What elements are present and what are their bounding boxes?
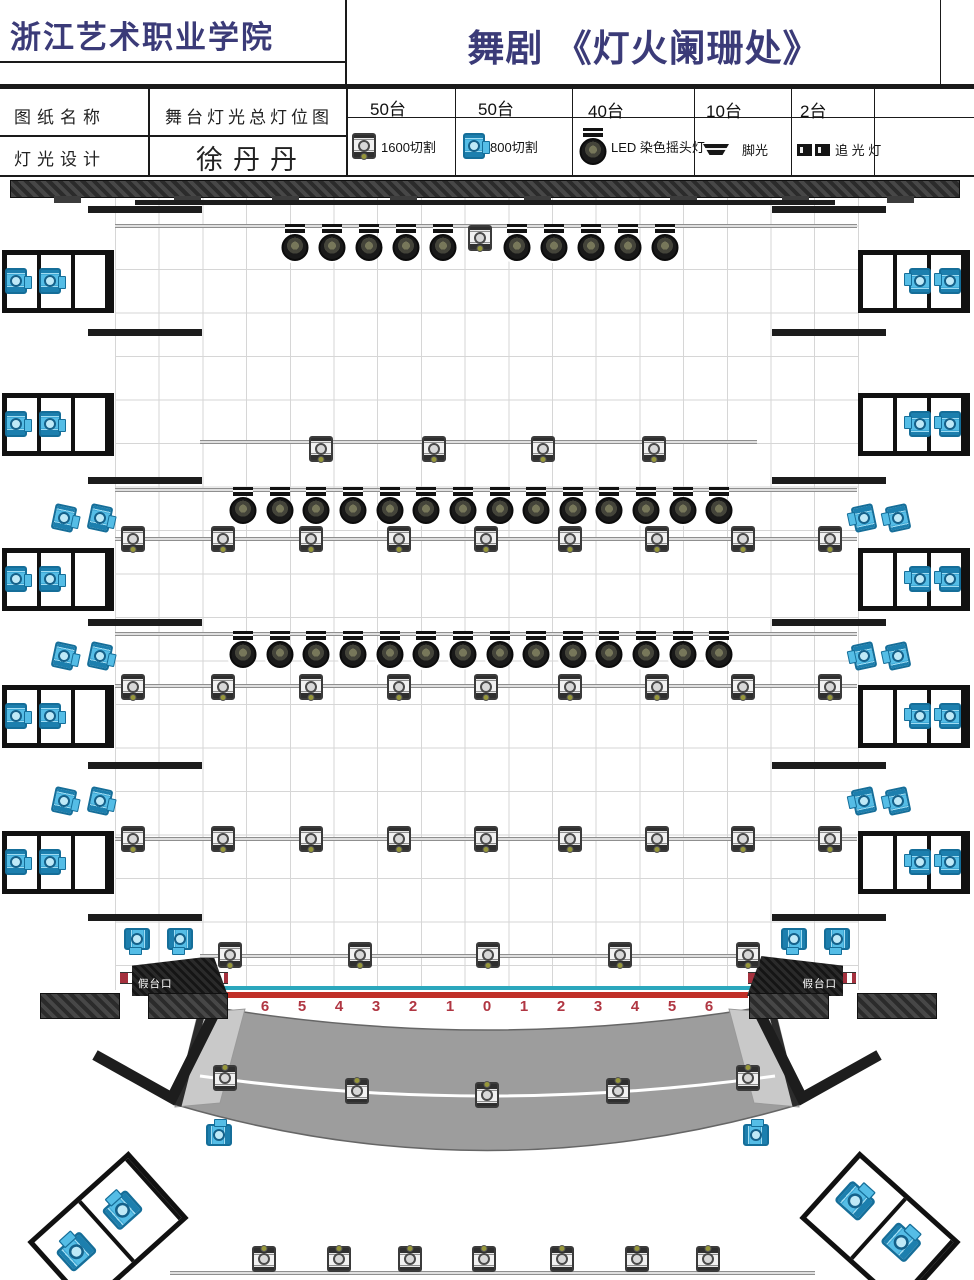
moving-head-light xyxy=(670,631,696,665)
profile-800-light xyxy=(851,641,878,671)
scale-number: 0 xyxy=(478,998,496,1015)
right-light-tower xyxy=(858,831,970,894)
profile-800-light xyxy=(939,566,961,592)
moving-head-light xyxy=(633,487,659,521)
wall-tab xyxy=(54,196,81,203)
legend-divider xyxy=(874,89,875,176)
legend-label-led: LED 染色摇头灯 xyxy=(611,137,705,156)
moving-head-light xyxy=(560,487,586,521)
profile-1600-light xyxy=(474,674,498,700)
scale-number: 4 xyxy=(626,998,644,1015)
moving-head-light xyxy=(633,631,659,665)
profile-800-light xyxy=(939,411,961,437)
false-proscenium-left-label: 假台口 xyxy=(138,976,173,991)
moving-head-light xyxy=(413,487,439,521)
profile-1600-light xyxy=(398,1246,422,1272)
left-wing-bar xyxy=(88,206,202,213)
right-wing-bar xyxy=(772,914,886,921)
profile-800-light xyxy=(87,641,114,671)
left-light-tower xyxy=(2,250,114,313)
profile-800-light xyxy=(39,703,61,729)
profile-800-light xyxy=(909,566,931,592)
profile-1600-light xyxy=(211,526,235,552)
left-light-tower xyxy=(2,548,114,611)
left-light-tower xyxy=(2,393,114,456)
moving-head-light xyxy=(230,487,256,521)
apron-deck xyxy=(177,1008,797,1151)
table-divider xyxy=(346,89,348,176)
moving-head-icon xyxy=(580,130,606,162)
moving-head-light xyxy=(504,224,530,258)
profile-1600-light xyxy=(327,1246,351,1272)
profile-1600-light xyxy=(531,436,555,462)
profile-800-light xyxy=(939,703,961,729)
profile-1600-light xyxy=(387,826,411,852)
moving-head-light xyxy=(303,631,329,665)
proscenium-block xyxy=(148,993,228,1019)
profile-800-light xyxy=(5,268,27,294)
profile-800-light xyxy=(824,928,850,950)
moving-head-light xyxy=(541,224,567,258)
right-light-tower xyxy=(858,685,970,748)
profile-800-light xyxy=(909,268,931,294)
proscenium-block xyxy=(857,993,937,1019)
moving-head-light xyxy=(578,224,604,258)
profile-1600-light xyxy=(474,526,498,552)
profile-800-light xyxy=(743,1124,769,1146)
profile-800-light xyxy=(39,849,61,875)
profile-1600-light xyxy=(558,674,582,700)
scale-number: 2 xyxy=(552,998,570,1015)
profile-800-light xyxy=(87,503,114,533)
table-divider xyxy=(148,89,150,176)
moving-head-light xyxy=(523,487,549,521)
profile-1600-light xyxy=(476,942,500,968)
legend-label-follow: 追 光 灯 xyxy=(835,140,881,159)
profile-800-light xyxy=(851,786,878,816)
profile-1600-light xyxy=(422,436,446,462)
moving-head-light xyxy=(319,224,345,258)
profile-1600-light xyxy=(731,826,755,852)
scale-number: 3 xyxy=(589,998,607,1015)
lighting-designer-label: 灯光设计 xyxy=(14,145,106,170)
followspot-icon xyxy=(797,144,830,156)
left-wing-bar xyxy=(88,619,202,626)
profile-800-light xyxy=(5,849,27,875)
scale-number: 2 xyxy=(404,998,422,1015)
profile-1600-light xyxy=(121,674,145,700)
profile-1600-light xyxy=(299,526,323,552)
profile-1600-light xyxy=(645,526,669,552)
drawing-name-label: 图纸名称 xyxy=(14,103,106,128)
profile-1600-light xyxy=(299,826,323,852)
profile-1600-light xyxy=(736,942,760,968)
profile-800-light xyxy=(124,928,150,950)
header-right-border xyxy=(940,0,941,86)
left-wing-bar xyxy=(88,914,202,921)
left-light-tower xyxy=(2,685,114,748)
profile-1600-light xyxy=(387,526,411,552)
profile-1600-light xyxy=(211,826,235,852)
profile-1600-light xyxy=(625,1246,649,1272)
profile-1600-light xyxy=(218,942,242,968)
right-wing-bar xyxy=(772,206,886,213)
right-wing-bar xyxy=(772,329,886,336)
profile-1600-light xyxy=(468,225,492,251)
profile-800-light xyxy=(39,566,61,592)
scale-number: 4 xyxy=(330,998,348,1015)
profile-800-light xyxy=(167,928,193,950)
false-proscenium-right-label: 假台口 xyxy=(803,976,838,991)
moving-head-light xyxy=(340,487,366,521)
lighting-designer-value: 徐丹丹 xyxy=(196,138,307,177)
moving-head-light xyxy=(267,487,293,521)
upstage-wall xyxy=(10,180,960,198)
wall-tab xyxy=(887,196,914,203)
profile-1600-light xyxy=(345,1078,369,1104)
profile-1600-light xyxy=(731,674,755,700)
moving-head-light xyxy=(450,487,476,521)
profile-800-light xyxy=(206,1124,232,1146)
header-divider xyxy=(345,0,347,86)
right-wing-bar xyxy=(772,619,886,626)
profile-800-icon xyxy=(463,133,485,159)
legend-label-800: 800切割 xyxy=(490,137,538,156)
profile-800-light xyxy=(39,411,61,437)
legend-count-led: 40台 xyxy=(588,97,624,122)
left-wing-bar xyxy=(88,329,202,336)
legend-divider xyxy=(791,89,792,176)
org-underline xyxy=(0,61,346,63)
moving-head-light xyxy=(377,487,403,521)
legend-count-follow: 2台 xyxy=(800,97,826,122)
right-light-tower xyxy=(858,548,970,611)
left-wing-bar xyxy=(88,477,202,484)
moving-head-light xyxy=(377,631,403,665)
profile-800-light xyxy=(5,566,27,592)
lighting-pipe xyxy=(115,632,857,636)
moving-head-light xyxy=(393,224,419,258)
legend-count-foot: 10台 xyxy=(706,97,742,122)
profile-1600-light xyxy=(299,674,323,700)
profile-1600-light xyxy=(550,1246,574,1272)
legend-label-foot: 脚光 xyxy=(742,140,768,159)
profile-1600-light xyxy=(211,674,235,700)
profile-1600-light xyxy=(472,1246,496,1272)
right-light-tower xyxy=(858,393,970,456)
left-light-tower xyxy=(2,831,114,894)
profile-1600-light xyxy=(818,526,842,552)
setting-line-teal xyxy=(150,986,812,990)
profile-800-light xyxy=(51,503,78,533)
profile-800-light xyxy=(909,703,931,729)
moving-head-light xyxy=(652,224,678,258)
profile-1600-light xyxy=(642,436,666,462)
profile-1600-light xyxy=(645,826,669,852)
moving-head-light xyxy=(596,631,622,665)
header-bottom-rule xyxy=(0,84,974,89)
profile-1600-light xyxy=(213,1065,237,1091)
scale-number: 6 xyxy=(700,998,718,1015)
moving-head-light xyxy=(487,487,513,521)
profile-1600-light xyxy=(558,826,582,852)
legend-row-divider xyxy=(347,117,974,118)
moving-head-light xyxy=(670,487,696,521)
profile-800-light xyxy=(885,786,912,816)
profile-1600-light xyxy=(645,674,669,700)
moving-head-light xyxy=(340,631,366,665)
moving-head-light xyxy=(596,487,622,521)
profile-800-light xyxy=(51,641,78,671)
scale-number: 6 xyxy=(256,998,274,1015)
moving-head-light xyxy=(303,487,329,521)
proscenium-block xyxy=(749,993,829,1019)
legend-divider xyxy=(455,89,456,176)
right-light-tower xyxy=(858,250,970,313)
profile-1600-light xyxy=(818,826,842,852)
scale-number: 5 xyxy=(663,998,681,1015)
profile-800-light xyxy=(5,703,27,729)
moving-head-light xyxy=(356,224,382,258)
drawing-name-value: 舞台灯光总灯位图 xyxy=(165,103,333,128)
moving-head-light xyxy=(560,631,586,665)
stage-lighting-plot-sheet: { "header": { "org": "浙江艺术职业学院", "title"… xyxy=(0,0,974,1280)
profile-800-light xyxy=(51,786,78,816)
scale-number: 3 xyxy=(367,998,385,1015)
moving-head-light xyxy=(267,631,293,665)
profile-800-light xyxy=(851,503,878,533)
profile-1600-light xyxy=(474,826,498,852)
moving-head-light xyxy=(523,631,549,665)
moving-head-light xyxy=(706,631,732,665)
profile-800-light xyxy=(939,849,961,875)
profile-800-light xyxy=(5,411,27,437)
legend-divider xyxy=(572,89,573,176)
profile-1600-light xyxy=(348,942,372,968)
profile-800-light xyxy=(939,268,961,294)
profile-800-light xyxy=(909,849,931,875)
moving-head-light xyxy=(282,224,308,258)
profile-1600-light xyxy=(121,526,145,552)
moving-head-light xyxy=(487,631,513,665)
legend-label-1600: 1600切割 xyxy=(381,137,436,156)
moving-head-light xyxy=(615,224,641,258)
profile-1600-light xyxy=(558,526,582,552)
scale-number: 1 xyxy=(515,998,533,1015)
profile-1600-light xyxy=(387,674,411,700)
profile-1600-light xyxy=(608,942,632,968)
lighting-pipe xyxy=(115,488,857,492)
border-batten xyxy=(135,200,835,205)
table-row-divider xyxy=(0,135,348,137)
profile-1600-light xyxy=(736,1065,760,1091)
profile-1600-light xyxy=(121,826,145,852)
lighting-pipe xyxy=(200,440,757,444)
moving-head-light xyxy=(450,631,476,665)
profile-800-light xyxy=(39,268,61,294)
proscenium-block xyxy=(40,993,120,1019)
profile-1600-light xyxy=(252,1246,276,1272)
show-title: 舞剧 《灯火阑珊处》 xyxy=(347,18,941,72)
right-wing-bar xyxy=(772,477,886,484)
profile-800-light xyxy=(885,641,912,671)
right-wing-bar xyxy=(772,762,886,769)
stage-grid xyxy=(115,182,859,990)
profile-1600-light xyxy=(818,674,842,700)
scale-number: 1 xyxy=(441,998,459,1015)
legend-count-800: 50台 xyxy=(478,95,514,120)
profile-1600-light xyxy=(696,1246,720,1272)
footlight-icon xyxy=(703,144,729,155)
profile-1600-light xyxy=(731,526,755,552)
profile-1600-light xyxy=(606,1078,630,1104)
organization-name: 浙江艺术职业学院 xyxy=(10,12,340,57)
profile-800-light xyxy=(781,928,807,950)
profile-800-light xyxy=(885,503,912,533)
left-wing-bar xyxy=(88,762,202,769)
table-bottom-border xyxy=(0,175,974,177)
moving-head-light xyxy=(413,631,439,665)
moving-head-light xyxy=(430,224,456,258)
profile-1600-light xyxy=(475,1082,499,1108)
profile-800-light xyxy=(909,411,931,437)
profile-1600-icon xyxy=(352,133,376,159)
moving-head-light xyxy=(230,631,256,665)
scale-number: 5 xyxy=(293,998,311,1015)
profile-800-light xyxy=(87,786,114,816)
legend-count-1600: 50台 xyxy=(370,95,406,120)
profile-1600-light xyxy=(309,436,333,462)
moving-head-light xyxy=(706,487,732,521)
